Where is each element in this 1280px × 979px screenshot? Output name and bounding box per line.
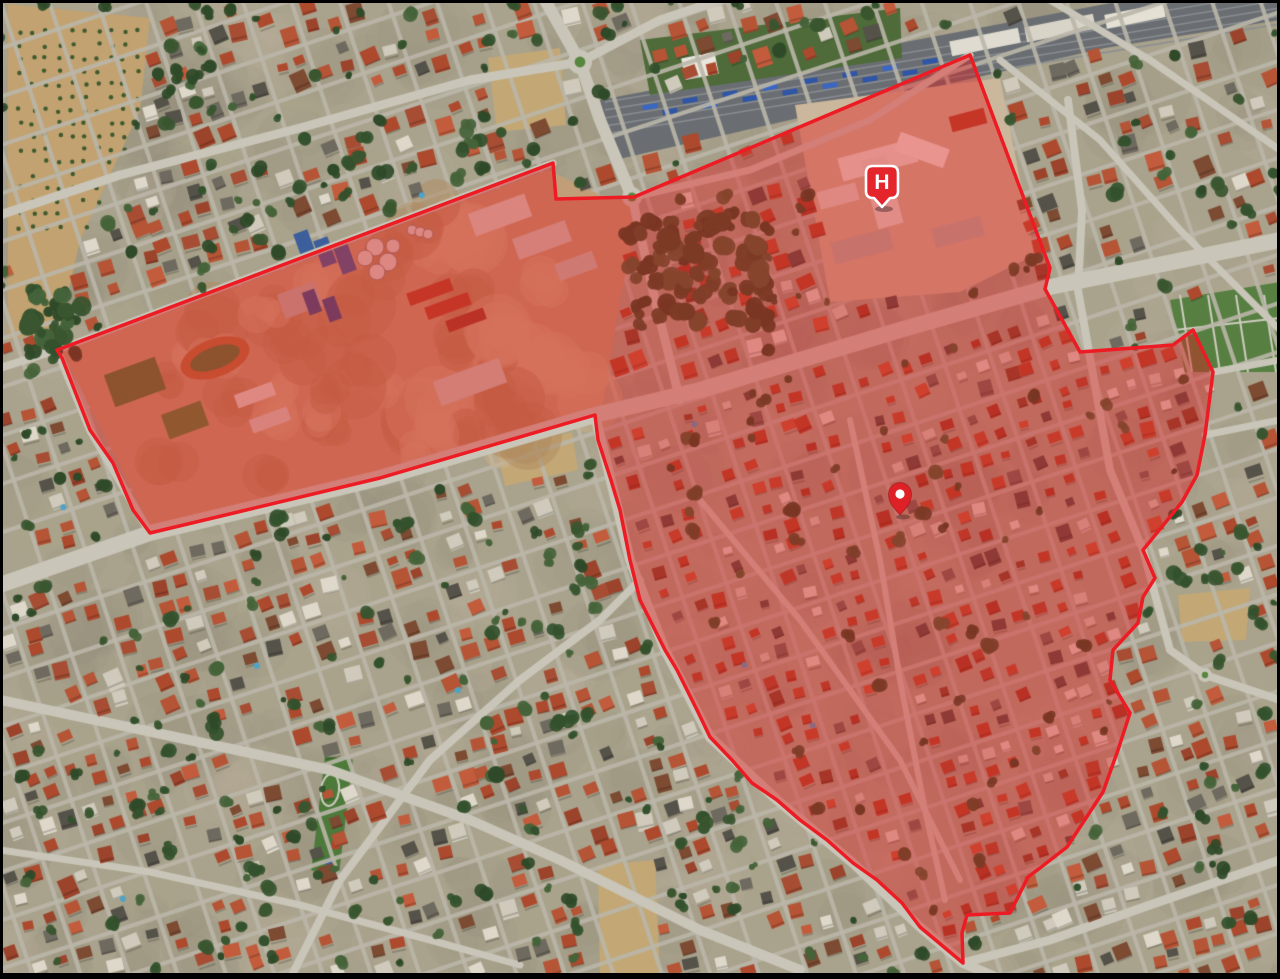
highlighted-region-polygon[interactable] bbox=[57, 55, 1213, 963]
location-pin-dot bbox=[895, 489, 904, 498]
map-viewport: H bbox=[0, 0, 1280, 979]
location-pin-shadow bbox=[896, 515, 910, 520]
hospital-marker-label: H bbox=[874, 171, 889, 194]
hospital-marker-shadow bbox=[875, 206, 893, 212]
overlay-layer: H bbox=[0, 0, 1280, 979]
